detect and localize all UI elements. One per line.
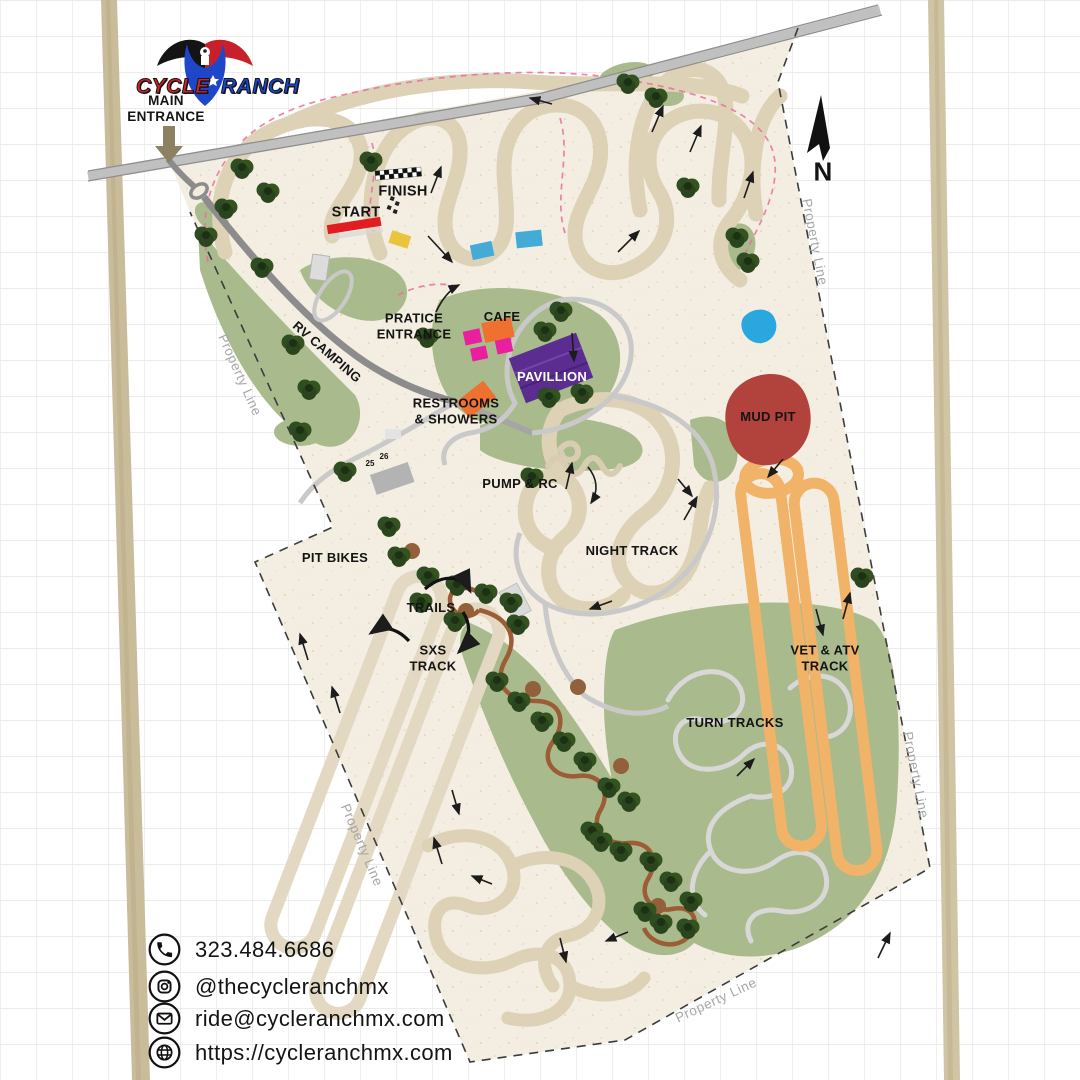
night-track-label: NIGHT TRACK (586, 543, 679, 559)
site-number-26: 26 (380, 452, 389, 462)
contact-website-row: https://cycleranchmx.com (148, 1036, 453, 1069)
logo-word-ranch: RANCH (221, 75, 299, 99)
website-url: https://cycleranchmx.com (195, 1040, 453, 1066)
pit-bikes-label: PIT BIKES (302, 550, 368, 566)
phone-number: 323.484.6686 (195, 937, 334, 963)
pump-rc-label: PUMP & RC (482, 476, 557, 492)
vet-atv-label: VET & ATV TRACK (790, 642, 859, 673)
start-label: START (332, 204, 381, 221)
map-canvas (0, 0, 1080, 1080)
cycle-ranch-map-poster: CYCLE RANCH MAIN ENTRANCE FINISH START P… (0, 0, 1080, 1080)
turn-tracks-label: TURN TRACKS (686, 715, 783, 731)
trails-label: TRAILS (407, 600, 456, 616)
finish-label: FINISH (378, 183, 427, 200)
sxs-track-label: SXS TRACK (410, 642, 457, 673)
restrooms-label: RESTROOMS & SHOWERS (413, 395, 499, 426)
phone-icon (148, 933, 181, 966)
email-address: ride@cycleranchmx.com (195, 1006, 445, 1032)
instagram-handle: @thecycleranchmx (195, 974, 389, 1000)
globe-icon (148, 1036, 181, 1069)
north-arrow-icon (807, 95, 830, 161)
practice-entrance-label: PRATICE ENTRANCE (377, 310, 452, 341)
logo-word-cycle: CYCLE (136, 75, 210, 99)
contact-phone-row: 323.484.6686 (148, 933, 334, 966)
contact-instagram-row: @thecycleranchmx (148, 970, 389, 1003)
site-number-25: 25 (366, 459, 375, 469)
north-label: N (813, 156, 832, 187)
email-icon (148, 1002, 181, 1035)
cycle-ranch-logo: CYCLE RANCH (122, 34, 297, 106)
pavilion-label: PAVILLION (517, 369, 587, 385)
contact-email-row: ride@cycleranchmx.com (148, 1002, 445, 1035)
instagram-icon (148, 970, 181, 1003)
cafe-label: CAFE (484, 309, 521, 325)
mud-pit-label: MUD PIT (740, 409, 796, 425)
